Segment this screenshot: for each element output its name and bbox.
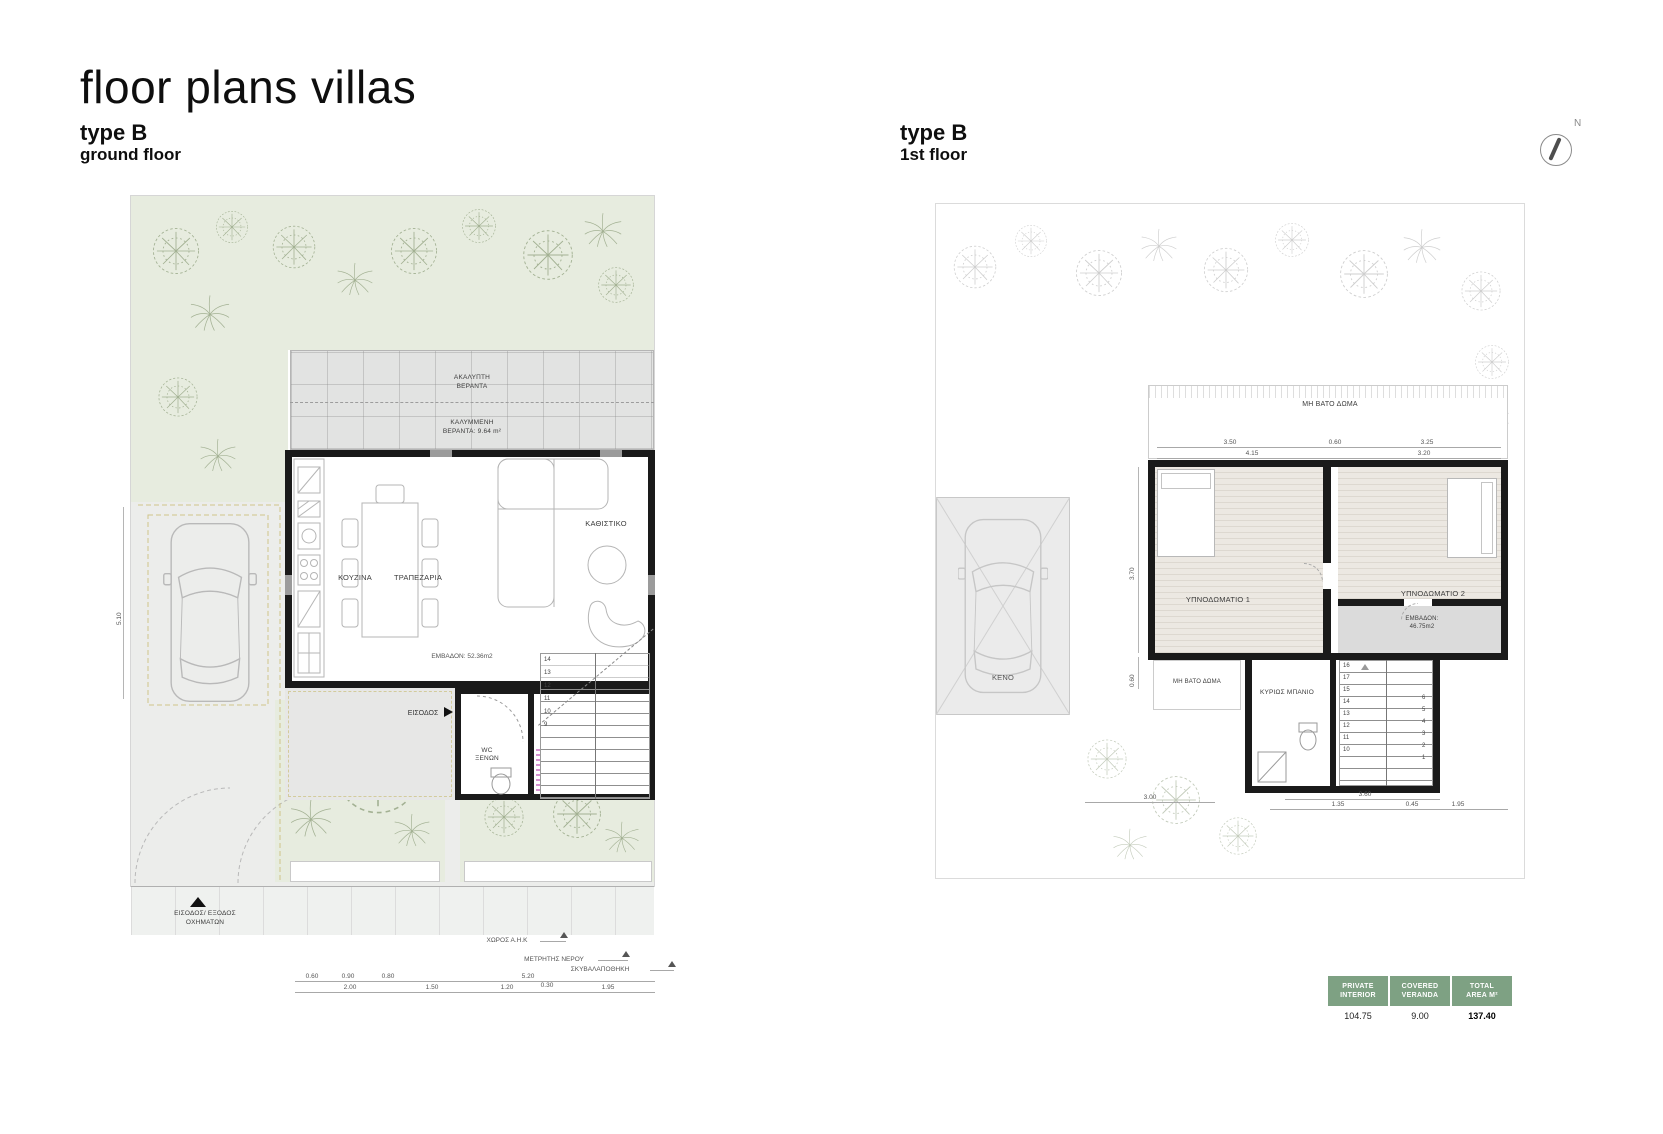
table-value-total: 137.40 <box>1452 1006 1512 1026</box>
dining-label: ΤΡΑΠΕΖΑΡΙΑ <box>394 573 442 582</box>
north-compass: N <box>1538 118 1598 178</box>
uncovered-veranda-label: ΒΕΡΑΝΤΑ <box>457 383 488 391</box>
floor-plan-sheet: floor plans villas type B ground floor t… <box>0 0 1663 1134</box>
table-column-total-area: TOTAL AREA M² 137.40 <box>1452 976 1512 1026</box>
dimension: 0.60 <box>306 973 319 980</box>
roof-top-label: ΜΗ ΒΑΤΟ ΔΩΜΑ <box>1302 401 1358 410</box>
wall-segment <box>600 450 622 457</box>
wall-segment <box>285 575 292 595</box>
table-value: 9.00 <box>1390 1006 1450 1026</box>
dimension-vertical: 0.60 <box>1129 674 1136 687</box>
stair-step-number: 2 <box>1422 743 1425 749</box>
porch-dashed-outline <box>288 691 452 797</box>
dimension-line <box>1157 447 1501 448</box>
first-floor-plan: ΚΕΝΟ ΜΗ ΒΑΤΟ ΔΩΜΑ 3.50 0.60 3.25 4.15 3.… <box>935 195 1540 895</box>
stair-step-number: 10 <box>1343 747 1350 753</box>
ground-area-label: ΕΜΒΑΔΟΝ: 52.36m2 <box>431 653 492 660</box>
bathroom-fixtures <box>1252 660 1330 786</box>
entrance-label: ΕΙΣΟΔΟΣ <box>408 710 439 717</box>
stair-step-number: 5 <box>1422 707 1425 713</box>
ground-floor-label: ground floor <box>80 146 181 163</box>
table-header: PRIVATE INTERIOR <box>1328 976 1388 1006</box>
dimension-line <box>295 992 655 993</box>
dimension: 3.50 <box>1224 439 1237 446</box>
stair-step-number: 10 <box>544 709 551 715</box>
leader-arrow-icon <box>560 932 568 938</box>
vehicle-entry-label: ΕΙΣΟΔΟΣ/ ΕΞΟΔΟΣ <box>174 910 236 918</box>
stair-step-number: 4 <box>1422 719 1425 725</box>
stair-up-arrow-icon <box>1361 664 1369 670</box>
veranda-divider <box>290 402 654 403</box>
bedroom2-label: ΥΠΝΟΔΩΜΑΤΙΟ 2 <box>1401 589 1465 598</box>
wall-segment <box>430 450 452 457</box>
dimension: 5.20 <box>522 973 535 980</box>
header-line: COVERED <box>1402 982 1439 991</box>
dimension: 1.95 <box>1452 801 1465 808</box>
north-label: N <box>1574 118 1581 129</box>
dimension: 1.50 <box>426 984 439 991</box>
wall-segment <box>648 575 655 595</box>
dimension-line <box>1138 657 1139 689</box>
kitchen-label: ΚΟΥΖΙΝΑ <box>338 573 372 582</box>
table-column-covered-veranda: COVERED VERANDA 9.00 <box>1390 976 1450 1026</box>
void-label: ΚΕΝΟ <box>992 673 1014 682</box>
vehicle-entry-label: ΟΧΗΜΑΤΩΝ <box>186 919 224 927</box>
dimension: 3.60 <box>1359 791 1372 798</box>
table-column-private-interior: PRIVATE INTERIOR 104.75 <box>1328 976 1388 1026</box>
leader-arrow-icon <box>622 951 630 957</box>
covered-veranda-label: ΚΑΛΥΜΜΕΝΗ <box>450 419 493 427</box>
dimension: 3.25 <box>1421 439 1434 446</box>
dimension: 0.45 <box>1406 801 1419 808</box>
wall-segment <box>1432 599 1501 606</box>
bedroom1-label: ΥΠΝΟΔΩΜΑΤΙΟ 1 <box>1186 595 1250 604</box>
ahk-label: ΧΩΡΟΣ Α.Η.Κ <box>486 937 527 944</box>
header-line: VERANDA <box>1402 991 1439 1000</box>
stair-step-number: 3 <box>1422 731 1425 737</box>
leader-arrow-icon <box>668 961 676 967</box>
dimension: 0.80 <box>382 973 395 980</box>
bed-pillow <box>1161 473 1211 489</box>
stair-step-number: 13 <box>1343 711 1350 717</box>
dimension-line <box>1270 809 1508 810</box>
leader-line <box>598 960 628 961</box>
dimension-vertical: 5.10 <box>116 612 123 625</box>
table-value: 104.75 <box>1328 1006 1388 1026</box>
dimension: 3.00 <box>1144 794 1157 801</box>
dimension-line <box>295 981 655 982</box>
roof-hatch <box>1149 386 1507 398</box>
stair-step-number: 6 <box>1422 695 1425 701</box>
dimension: 0.60 <box>1329 439 1342 446</box>
area-summary-table: PRIVATE INTERIOR 104.75 COVERED VERANDA … <box>1328 976 1512 1026</box>
header-line: PRIVATE <box>1342 982 1373 991</box>
dimension-vertical: 3.70 <box>1129 567 1136 580</box>
uncovered-veranda-label: ΑΚΑΛΥΠΤΗ <box>454 374 490 382</box>
first-area-label: 46.75m2 <box>1410 624 1435 632</box>
dimension-line <box>1285 799 1440 800</box>
bathroom-label: ΚΥΡΙΩΣ ΜΠΑΝΙΟ <box>1260 689 1314 697</box>
covered-veranda-label: ΒΕΡΑΝΤΑ: 9.64 m² <box>443 428 501 436</box>
stair-step-number: 11 <box>544 696 550 702</box>
first-area-label: ΕΜΒΑΔΟΝ: <box>1405 616 1438 624</box>
stair-step-number: 12 <box>1343 723 1350 729</box>
living-label: ΚΑΘΙΣΤΙΚΟ <box>585 519 626 528</box>
door-opening <box>1323 563 1331 589</box>
garbage-store-label: ΣΚΥΒΑΛΑΠΟΘΗΚΗ <box>571 966 630 973</box>
stair-step-number: 17 <box>1343 675 1350 681</box>
bed-pillow <box>1481 482 1493 554</box>
dimension: 3.20 <box>1418 450 1431 457</box>
dimension-line <box>1138 467 1139 653</box>
leader-line <box>540 941 566 942</box>
leader-line <box>650 970 674 971</box>
stair-step-number: 16 <box>1343 663 1350 669</box>
stair-step-number: 15 <box>1343 687 1350 693</box>
dimension: 1.95 <box>602 984 615 991</box>
stair-step-number: 14 <box>544 657 551 663</box>
dimension: 1.20 <box>501 984 514 991</box>
dimension-line <box>1157 458 1501 459</box>
living-room-furniture <box>292 457 648 681</box>
first-type-label: type B <box>900 122 967 144</box>
stair-step-number: 9 <box>544 722 547 728</box>
dimension: 0.30 <box>541 982 554 989</box>
stair-step-number: 14 <box>1343 699 1350 705</box>
stair-step-number: 11 <box>1343 735 1349 741</box>
wc-label: WC <box>481 747 492 755</box>
table-header: COVERED VERANDA <box>1390 976 1450 1006</box>
dimension-line <box>123 507 124 699</box>
stair-step-number: 13 <box>544 670 551 676</box>
ground-floor-plan: ΑΚΑΛΥΠΤΗ ΒΕΡΑΝΤΑ ΚΑΛΥΜΜΕΝΗ ΒΕΡΑΝΤΑ: 9.64… <box>130 195 655 995</box>
entrance-arrow-icon <box>444 707 453 717</box>
dimension: 4.15 <box>1246 450 1259 457</box>
roof-low-label: ΜΗ ΒΑΤΟ ΔΩΜΑ <box>1173 679 1221 687</box>
header-line: TOTAL <box>1470 982 1494 991</box>
wall-segment <box>1330 653 1336 793</box>
wall-segment <box>1338 599 1404 606</box>
ground-type-label: type B <box>80 122 147 144</box>
header-line: INTERIOR <box>1340 991 1376 1000</box>
table-header: TOTAL AREA M² <box>1452 976 1512 1006</box>
page-title: floor plans villas <box>80 60 416 114</box>
stair-step-number: 1 <box>1422 755 1425 761</box>
vehicle-entry-arrow-icon <box>190 897 206 907</box>
first-floor-label: 1st floor <box>900 146 967 163</box>
water-meter-label: ΜΕΤΡΗΤΗΣ ΝΕΡΟΥ <box>524 956 584 963</box>
dimension: 2.00 <box>344 984 357 991</box>
dimension-line <box>1085 802 1215 803</box>
wc-label: ΞΕΝΩΝ <box>475 755 499 763</box>
stair-step-number: 12 <box>544 683 551 689</box>
header-line: AREA M² <box>1466 991 1498 1000</box>
wall-segment <box>1323 467 1331 653</box>
stair-stringer <box>1386 660 1387 786</box>
dimension: 1.35 <box>1332 801 1345 808</box>
dimension: 0.90 <box>342 973 355 980</box>
